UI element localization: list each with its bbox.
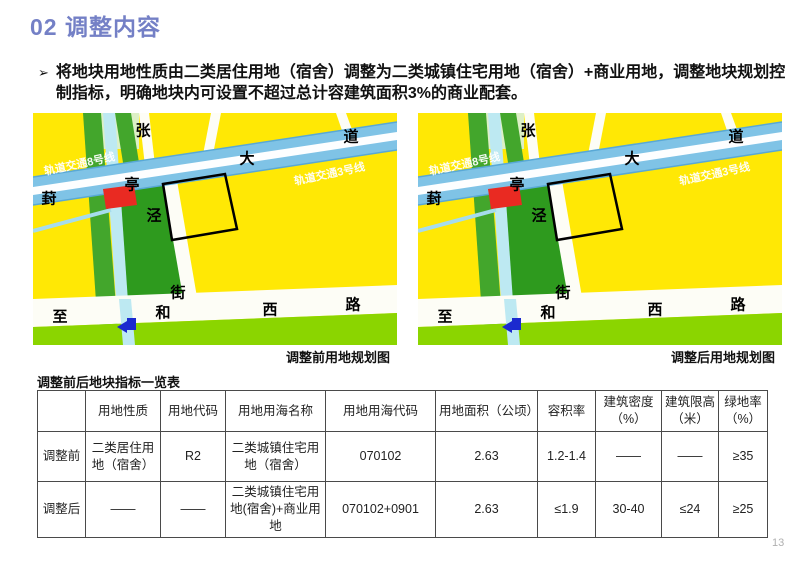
row-label: 调整前 [38,432,86,482]
table-cell: 二类城镇住宅用地（宿舍） [226,432,326,482]
road-label-ting: 亭 [509,176,524,194]
table-cell: —— [596,432,662,482]
road-label-dao: 道 [343,128,358,146]
table-cell: ≥25 [719,482,768,538]
road-label-jie: 街 [169,284,185,302]
bullet-paragraph: ➢ 将地块用地性质由二类居住用地（宿舍）调整为二类城镇住宅用地（宿舍）+商业用地… [38,62,790,104]
road-label-zhi: 至 [437,309,452,326]
table-cell: —— [86,482,161,538]
header-cell: 用地面积（公顷） [436,391,538,432]
road-label-da: 大 [624,150,639,168]
header-cell: 绿地率（%） [719,391,768,432]
caption-map-before: 调整前用地规划图 [33,347,390,366]
table-cell: ≥35 [719,432,768,482]
table-cell: 070102+0901 [326,482,436,538]
header-cell: 容积率 [538,391,596,432]
table-cell: ≤1.9 [538,482,596,538]
header-cell: 建筑密度（%） [596,391,662,432]
road-label-jing: 泾 [531,207,546,225]
road-label-zhang: 张 [520,123,536,140]
header-cell: 用地用海代码 [326,391,436,432]
map-before: 轨道交通8号线 轨道交通3号线 张 道 大 亭 葑 泾 街 至 和 西 路 [33,113,397,345]
table-cell: ≤24 [662,482,719,538]
caption-map-after: 调整后用地规划图 [418,347,775,366]
indicator-table: 用地性质 用地代码 用地用海名称 用地用海代码 用地面积（公顷） 容积率 建筑密… [37,390,768,538]
table-cell: 二类城镇住宅用地(宿舍)+商业用地 [226,482,326,538]
row-label: 调整后 [38,482,86,538]
table-row-after: 调整后 —— —— 二类城镇住宅用地(宿舍)+商业用地 070102+0901 … [38,482,768,538]
road-label-xi: 西 [647,302,662,319]
road-label-he: 和 [155,305,170,322]
road-label-he: 和 [540,305,555,322]
planning-map-before: 轨道交通8号线 轨道交通3号线 张 道 大 亭 葑 泾 街 至 和 西 路 [33,113,397,345]
bullet-text: 将地块用地性质由二类居住用地（宿舍）调整为二类城镇住宅用地（宿舍）+商业用地，调… [56,62,790,104]
road-label-feng: 葑 [41,190,56,208]
table-cell: 1.2-1.4 [538,432,596,482]
table-cell: R2 [161,432,226,482]
page-title: 02 调整内容 [30,8,161,42]
road-label-da: 大 [239,150,254,168]
road-label-dao: 道 [728,128,743,146]
road-label-zhang: 张 [135,123,151,140]
table-cell: 070102 [326,432,436,482]
table-cell: —— [161,482,226,538]
road-label-feng: 葑 [426,190,441,208]
table-cell: 2.63 [436,432,538,482]
page-number: 13 [772,537,784,549]
planning-map-after: 轨道交通8号线 轨道交通3号线 张 道 大 亭 葑 泾 街 至 和 西 路 [418,113,782,345]
header-cell: 用地代码 [161,391,226,432]
table-cell: —— [662,432,719,482]
map-after: 轨道交通8号线 轨道交通3号线 张 道 大 亭 葑 泾 街 至 和 西 路 [418,113,782,345]
bullet-arrow-icon: ➢ [38,62,49,83]
table-header-row: 用地性质 用地代码 用地用海名称 用地用海代码 用地面积（公顷） 容积率 建筑密… [38,391,768,432]
road-label-zhi: 至 [52,309,67,326]
table-cell: 30-40 [596,482,662,538]
header-cell [38,391,86,432]
header-cell: 用地用海名称 [226,391,326,432]
road-label-ting: 亭 [124,176,139,194]
road-label-lu: 路 [345,296,361,314]
header-cell: 用地性质 [86,391,161,432]
road-label-xi: 西 [262,302,277,319]
table-row-before: 调整前 二类居住用地（宿舍） R2 二类城镇住宅用地（宿舍） 070102 2.… [38,432,768,482]
road-label-jie: 街 [554,284,570,302]
table-cell: 二类居住用地（宿舍） [86,432,161,482]
table-title: 调整前后地块指标一览表 [37,372,180,391]
header-cell: 建筑限高（米） [662,391,719,432]
road-label-jing: 泾 [146,207,161,225]
table-cell: 2.63 [436,482,538,538]
road-label-lu: 路 [730,296,746,314]
